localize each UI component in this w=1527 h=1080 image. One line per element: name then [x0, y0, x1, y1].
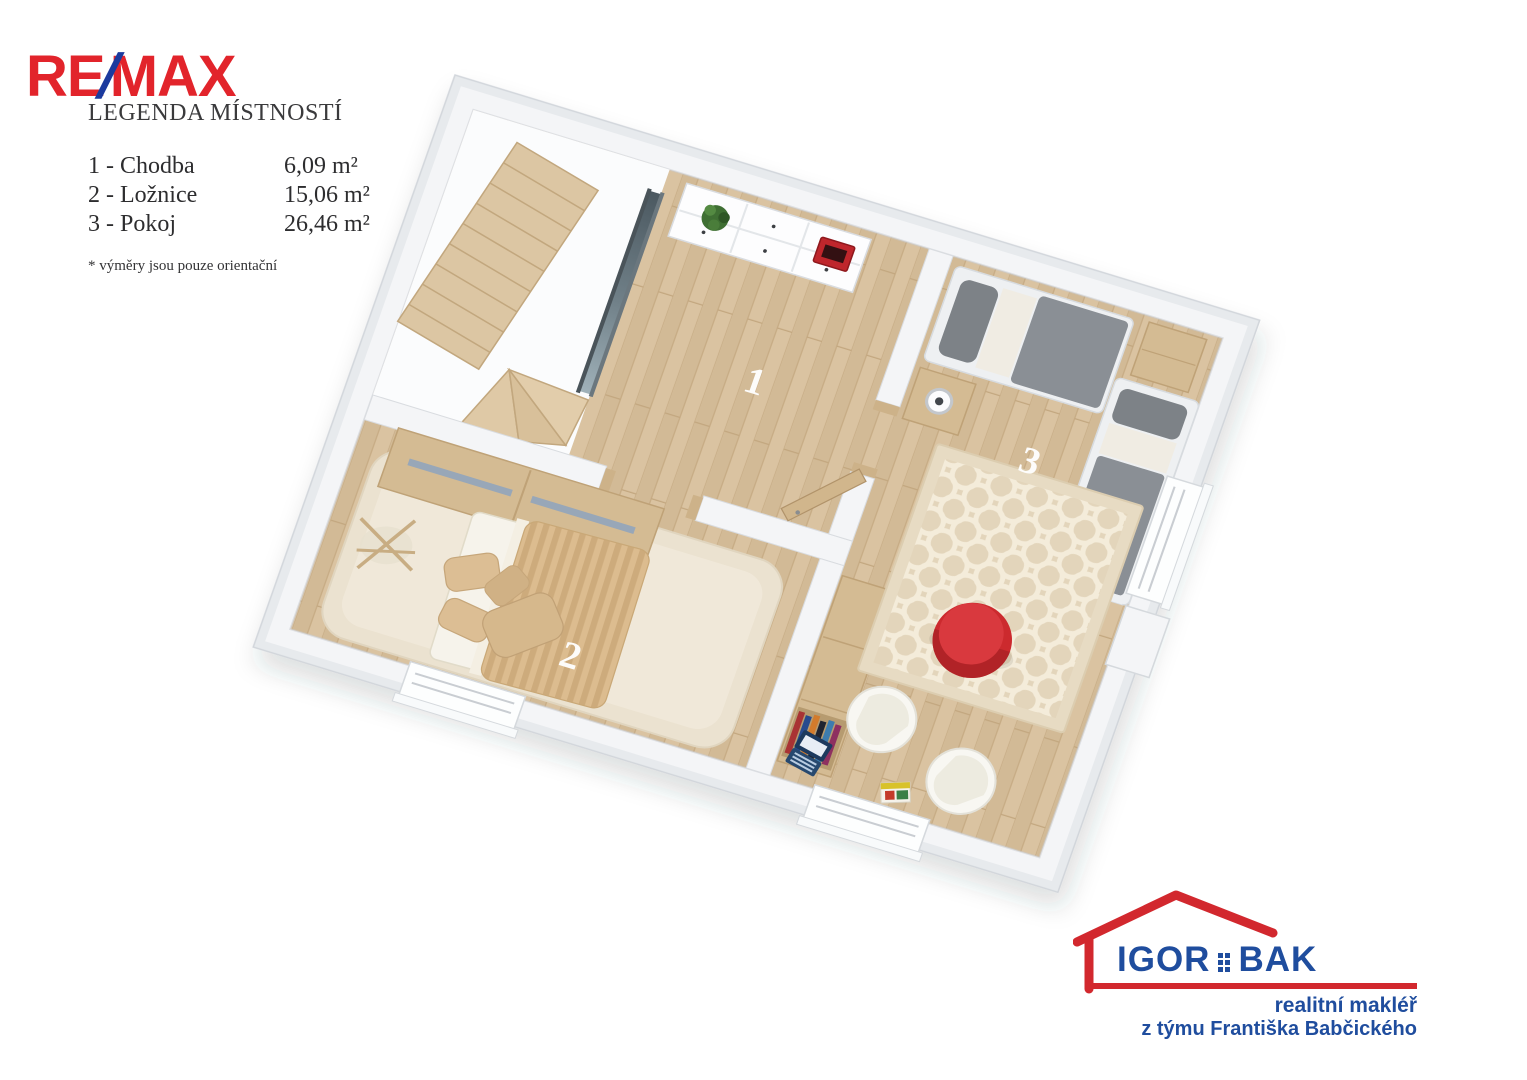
- agent-name-bak: BAK: [1238, 942, 1317, 977]
- legend-room-area: 6,09 m²: [284, 152, 358, 181]
- agent-tagline-2: z týmu Františka Babčického: [1141, 1018, 1417, 1041]
- legend-note: * výměry jsou pouze orientační: [88, 258, 277, 275]
- legend-row-pokoj: 3 - Pokoj 26,46 m²: [88, 210, 370, 239]
- agent-tagline-1: realitní makléř: [1275, 994, 1417, 1018]
- legend-row-chodba: 1 - Chodba 6,09 m²: [88, 152, 370, 181]
- remax-logo: RE/MAX: [26, 48, 236, 106]
- legend-row-loznice: 2 - Ložnice 15,06 m²: [88, 181, 370, 210]
- agent-logo: IGOR BAK realitní makléř z týmu Františk…: [1073, 886, 1463, 1056]
- legend-room-name: 2 - Ložnice: [88, 181, 284, 210]
- legend-room-list: 1 - Chodba 6,09 m² 2 - Ložnice 15,06 m² …: [88, 152, 370, 239]
- remax-logo-max: MAX: [110, 44, 236, 109]
- dots-separator-icon: [1218, 953, 1230, 972]
- legend-room-area: 26,46 m²: [284, 210, 370, 239]
- agent-name: IGOR BAK: [1117, 942, 1317, 977]
- magazine: [881, 782, 911, 803]
- legend-room-name: 1 - Chodba: [88, 152, 284, 181]
- agent-name-igor: IGOR: [1117, 942, 1210, 977]
- legend-room-area: 15,06 m²: [284, 181, 370, 210]
- legend-room-name: 3 - Pokoj: [88, 210, 284, 239]
